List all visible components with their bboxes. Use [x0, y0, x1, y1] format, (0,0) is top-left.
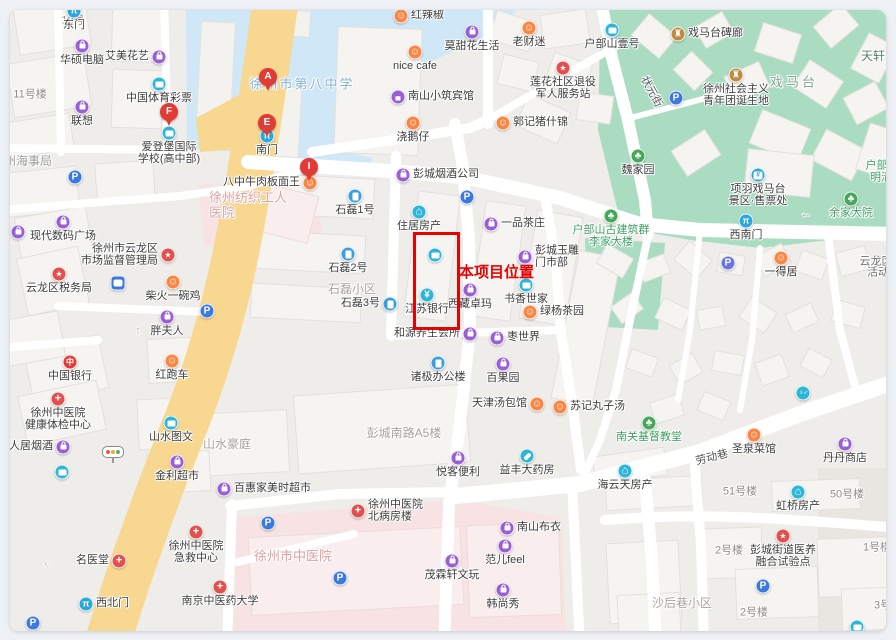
haiyuntian-realty-icon[interactable]: ⌂ [618, 464, 633, 479]
parking-5-icon[interactable]: P [333, 571, 348, 586]
weijiayuan-icon[interactable]: ♣ [631, 149, 646, 164]
bazhong-beef-noodle-label: 八中牛肉板面王 [223, 177, 300, 189]
pengcheng-care-site-label: 彭城街道医养 融合试验点 [750, 545, 816, 568]
tcm-north-ward-icon[interactable]: + [351, 504, 366, 519]
hongqiao-realty-icon[interactable]: ⌂ [791, 485, 806, 500]
map-label: 彭城南路A5楼 [367, 427, 442, 441]
pangfuren-label: 胖夫人 [151, 326, 184, 338]
map-canvas[interactable]: 10号11号楼晨光文具大塘中村徐州海事局徐州市第八中学徐州纺织工人 医院石磊小区… [10, 10, 886, 631]
zhuji-office-label: 诸极办公楼 [411, 372, 466, 384]
gate-northwest-label: 西北门 [96, 598, 129, 610]
parking-8-icon[interactable]: P [669, 91, 684, 106]
pengcheng-jade-label: 彭城玉雕 门市部 [535, 245, 579, 268]
ximatai-ticket-office-label: 项羽戏马台 景区·售票处 [729, 184, 788, 207]
parking-6-icon[interactable]: P [721, 256, 736, 271]
suji-meatball-soup-icon[interactable]: ☺ [553, 400, 568, 415]
map-label: 徐州市中医院 [254, 550, 332, 565]
ximatai-beilang-icon[interactable]: ♜ [671, 27, 686, 42]
faner-feel-icon[interactable] [498, 539, 513, 554]
huashuo-computer-label: 华硕电脑 [60, 55, 104, 67]
mingrenju-tobacco-icon[interactable] [56, 440, 71, 455]
map-label: 3号楼 [874, 600, 886, 613]
zhuju-realty-icon[interactable]: ⌂ [412, 205, 427, 220]
chaihuo-chicken-label: 柴火一碗鸡 [146, 291, 201, 303]
pengcheng-tobacco-icon[interactable] [396, 168, 411, 183]
tcm-north-ward-label: 徐州中医院 北病房楼 [368, 499, 423, 522]
heyuan-wellness-icon[interactable] [463, 327, 478, 342]
nice-cafe-icon[interactable]: ☺ [408, 45, 423, 60]
gate-southwest-label: 西南门 [730, 230, 763, 242]
shilei-1-label: 石磊1号 [335, 205, 374, 217]
jiaoezai-label: 浇鹅仔 [397, 132, 430, 144]
dandan-store-label: 丹丹商店 [823, 453, 867, 465]
hubushan-yihao-label: 户部山壹号 [585, 39, 640, 51]
teal-poi-2-icon[interactable] [850, 620, 865, 632]
tianjin-baozi-label: 天津汤包馆 [472, 398, 527, 410]
gate-south-label: 南门 [256, 145, 278, 157]
shilei-2-icon[interactable] [341, 247, 356, 262]
hanshangxiu-label: 韩尚秀 [487, 599, 520, 611]
yifeng-pharmacy-label: 益丰大药房 [500, 465, 555, 477]
baiguoyuan-label: 百果园 [487, 373, 520, 385]
lvyang-teahouse-icon[interactable]: ☺ [523, 305, 538, 320]
suji-meatball-soup-label: 苏记丸子汤 [570, 401, 625, 413]
zaoshijie-label: 枣世界 [507, 332, 540, 344]
mingyitang-label: 名医堂 [76, 555, 109, 567]
baiguoyuan-icon[interactable] [496, 357, 511, 372]
yujia-dayuan-label: 余家大院 [829, 208, 873, 220]
aidengbao-school-label: 爱登堡国际 学校(高中部) [138, 142, 200, 165]
shilei-1-icon[interactable] [348, 189, 363, 204]
tcm-checkup-center-icon[interactable]: + [51, 392, 66, 407]
map-label: 11号楼 [13, 89, 46, 102]
map-label: ← [800, 207, 812, 221]
lenovo-icon[interactable] [75, 100, 90, 115]
market-regulation-bureau-icon[interactable]: ★ [161, 248, 176, 263]
lijia-dalou-label: 户部山古建筑群 李家大楼 [573, 225, 650, 248]
parking-1-icon[interactable]: P [68, 170, 83, 185]
yideju-icon[interactable]: ☺ [774, 251, 789, 266]
motianhua-life-icon[interactable] [465, 25, 480, 40]
mingyitang-icon[interactable]: + [112, 554, 127, 569]
gate-east-label: 东门 [63, 20, 85, 32]
pengcheng-tobacco-label: 彭城烟酒公司 [413, 169, 479, 181]
sports-lottery-icon[interactable] [152, 77, 167, 92]
aimei-flower-label: 艾美花艺 [105, 51, 149, 63]
nanguan-church-icon[interactable]: ♣ [642, 416, 657, 431]
nanshan-hotel-icon[interactable]: ▄ [391, 90, 406, 105]
map-label: 徐州纺织工人 医院 [209, 191, 287, 221]
bank-of-china-icon[interactable]: 中 [63, 355, 78, 370]
map-label: 山水豪庭 [203, 438, 251, 452]
nice-cafe-label: nice cafe [393, 61, 437, 73]
yifeng-pharmacy-icon[interactable] [520, 449, 535, 464]
tax-bureau-icon[interactable]: ★ [52, 267, 67, 282]
bank-of-china-label: 中国银行 [48, 371, 92, 383]
hongqiao-realty-label: 虹桥房产 [776, 501, 820, 513]
weijiayuan-label: 魏家园 [622, 165, 655, 177]
lianhua-veteran-station-icon[interactable]: ★ [556, 61, 571, 76]
nanshan-buyi-icon[interactable] [500, 521, 515, 536]
gate-northwest-icon[interactable]: π [79, 597, 94, 612]
nanshan-hotel-label: 南山小筑宾馆 [408, 91, 474, 103]
yideju-label: 一得居 [765, 267, 798, 279]
ximatai-ticket-office-icon[interactable]: II [751, 168, 766, 183]
marker-pin-E[interactable]: E [258, 114, 276, 132]
hongpaoche-label: 红跑车 [156, 370, 189, 382]
nanjing-tcm-university-label: 南京中医药大学 [182, 596, 259, 608]
zhuju-realty-label: 住居房产 [397, 221, 441, 233]
map-label: 石磊小区 [328, 283, 376, 297]
lenovo-label: 联想 [71, 116, 93, 128]
tcm-checkup-center-label: 徐州中医院 健康体检中心 [25, 408, 91, 431]
market-regulation-bureau-label: 徐州市云龙区 市场监督管理局 [81, 243, 158, 266]
map-label: 50号楼 [830, 489, 864, 502]
xiandai-digital-plaza-label: 现代数码广场 [30, 231, 96, 243]
dandan-store-icon[interactable] [838, 437, 853, 452]
nanguan-church-label: 南关基督教堂 [616, 432, 682, 444]
marker-pin-I[interactable]: I [300, 158, 318, 176]
lijia-dalou-icon[interactable]: ♣ [604, 209, 619, 224]
pangfuren-icon[interactable] [160, 310, 175, 325]
parking-2-icon[interactable]: P [200, 304, 215, 319]
jinli-supermarket-label: 金利超市 [155, 471, 199, 483]
youth-league-site-label: 徐州社会主义 青年团诞生地 [703, 84, 769, 107]
map-label: 沙后巷小区 [652, 597, 712, 611]
map-label: 活动 [867, 267, 886, 280]
laocaimi-icon[interactable]: ☺ [522, 21, 537, 36]
hubushan-yihao-icon[interactable] [605, 23, 620, 38]
shanshui-print-icon[interactable] [164, 416, 179, 431]
faner-feel-label: 范儿feel [485, 555, 525, 567]
xizang-zhuoma-icon[interactable] [463, 283, 478, 298]
map-label: 戏马台 [770, 76, 818, 91]
aimei-flower-icon[interactable] [152, 50, 167, 65]
map-label: 天轩 [861, 50, 885, 64]
map-label: 1号楼 [863, 542, 886, 555]
motianhua-life-label: 莫甜花生活 [445, 41, 500, 53]
tcm-emergency-center-label: 徐州中医院 急救中心 [169, 541, 224, 564]
map-label: 明清 [870, 172, 886, 185]
yueke-store-icon[interactable] [451, 451, 466, 466]
map-label: 2号楼 [740, 607, 768, 620]
chaihuo-chicken-icon[interactable]: ☺ [166, 275, 181, 290]
baihui-supermarket-label: 百惠家美时超市 [234, 483, 311, 495]
mingrenju-tobacco-label: 名人居烟酒 [10, 441, 53, 453]
map-label: 51号楼 [723, 486, 757, 499]
bus-stop-icon[interactable] [111, 276, 126, 291]
marker-pin-F[interactable]: F [160, 103, 178, 121]
yueke-store-label: 悦客便利 [436, 467, 480, 479]
pengcheng-care-site-icon[interactable]: ★ [776, 529, 791, 544]
hanshangxiu-icon[interactable] [496, 583, 511, 598]
map-world: 10号11号楼晨光文具大塘中村徐州海事局徐州市第八中学徐州纺织工人 医院石磊小区… [10, 10, 886, 631]
shilei-2-label: 石磊2号 [328, 263, 367, 275]
parking-4-icon[interactable]: P [261, 516, 276, 531]
map-label: ↑ [135, 324, 142, 339]
shengquan-restaurant-label: 圣泉菜馆 [732, 444, 776, 456]
yipin-teahouse-label: 一品茶庄 [501, 218, 545, 230]
shilei-3-label: 石磊3号 [341, 298, 380, 310]
xiandai-digital-plaza-icon[interactable] [56, 215, 71, 230]
laocaimi-label: 老财迷 [513, 37, 546, 49]
map-label: 徐州海事局 [10, 155, 52, 169]
shanshui-print-label: 山水图文 [149, 432, 193, 444]
marker-pin-A[interactable]: A [259, 68, 277, 86]
tax-bureau-label: 云龙区税务局 [26, 283, 92, 295]
tianjin-baozi-icon[interactable]: ☺ [530, 397, 545, 412]
guoji-pig-label: 郭记猪什锦 [513, 117, 568, 129]
gate-southwest-icon[interactable]: π [739, 214, 754, 229]
traffic-light-icon[interactable] [100, 444, 126, 460]
sports-lottery-label: 中国体育彩票 [126, 93, 192, 105]
parking-9-icon[interactable]: P [26, 616, 41, 631]
zaoshijie-icon[interactable] [490, 331, 505, 346]
guoji-pig-icon[interactable]: ☺ [496, 116, 511, 131]
yipin-teahouse-icon[interactable] [484, 217, 499, 232]
baihui-supermarket-icon[interactable] [217, 482, 232, 497]
bag-partial-left-icon[interactable] [11, 225, 26, 240]
jiaoezai-icon[interactable]: ☺ [406, 116, 421, 131]
toilet-icon[interactable]: ♀♂ [796, 386, 811, 401]
hongpaoche-icon[interactable]: ☺ [165, 354, 180, 369]
map-label: 2号楼 [715, 545, 743, 558]
lianhua-veteran-station-label: 莲花社区退役 军人服务站 [530, 77, 596, 100]
tcm-emergency-center-icon[interactable]: + [189, 525, 204, 540]
project-location-label: 本项目位置 [459, 261, 534, 282]
yujia-dayuan-icon[interactable]: ♣ [844, 192, 859, 207]
ximatai-beilang-label: 戏马台碑廊 [688, 28, 743, 40]
lvyang-teahouse-label: 绿杨茶园 [540, 306, 584, 318]
shuxiang-shijia-label: 书香世家 [504, 294, 548, 306]
maolinxuan-antiques-label: 茂霖轩文玩 [425, 570, 480, 582]
map-label: 户部山 [866, 160, 887, 173]
parking-3-icon[interactable]: P [460, 190, 475, 205]
nanshan-buyi-label: 南山布衣 [517, 522, 561, 534]
haiyuntian-realty-label: 海云天房产 [598, 480, 653, 492]
shengquan-restaurant-icon[interactable]: ☺ [747, 428, 762, 443]
project-location-box [413, 232, 460, 330]
nanjing-tcm-university-icon[interactable]: + [213, 580, 228, 595]
huashuo-computer-icon[interactable] [75, 39, 90, 54]
jinli-supermarket-icon[interactable] [170, 455, 185, 470]
teal-poi-1-icon[interactable] [55, 465, 70, 480]
honglajiao-label: 红辣椒 [411, 10, 444, 22]
youth-league-site-icon[interactable]: ♜ [729, 68, 744, 83]
parking-7-icon[interactable]: P [756, 579, 771, 594]
maolinxuan-antiques-icon[interactable] [445, 554, 460, 569]
shilei-3-icon[interactable] [383, 297, 398, 312]
zhuji-office-icon[interactable] [431, 356, 446, 371]
